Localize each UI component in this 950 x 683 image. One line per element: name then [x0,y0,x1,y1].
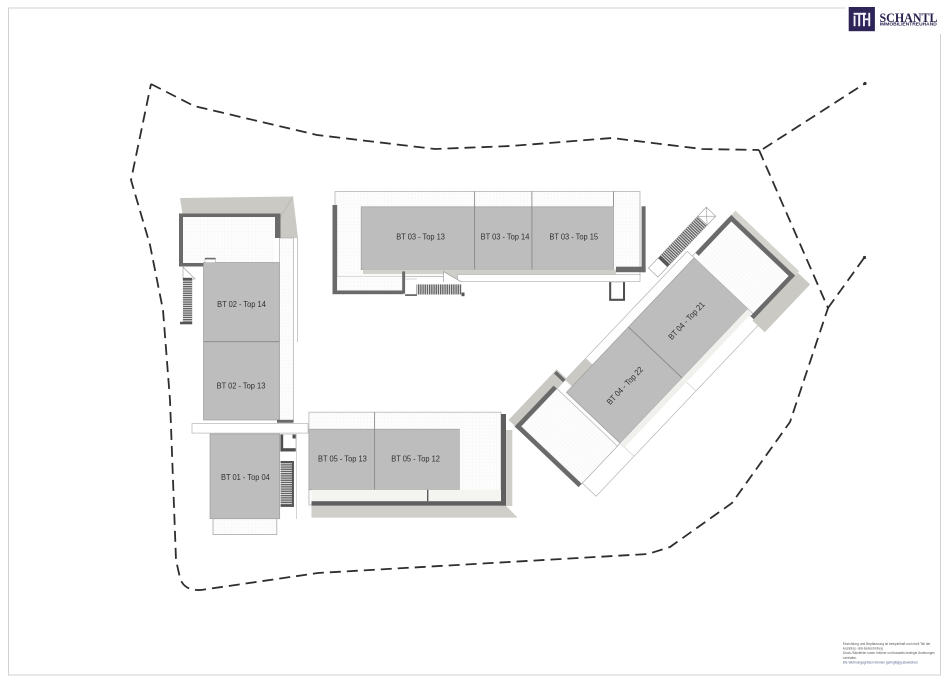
svg-text:BT 03 - Top 14: BT 03 - Top 14 [481,233,530,242]
svg-text:BT 05 - Top 13: BT 05 - Top 13 [318,455,367,464]
svg-text:IMMOBILIENTREUHAND: IMMOBILIENTREUHAND [880,22,937,27]
svg-text:BT 02 - Top 13: BT 02 - Top 13 [217,382,266,391]
svg-text:BT 01 - Top 04: BT 01 - Top 04 [221,473,270,482]
svg-text:BT 05 - Top 12: BT 05 - Top 12 [391,455,440,464]
svg-text:Druck-/Satzfehler sowie Irrtüm: Druck-/Satzfehler sowie Irrtümer und bau… [843,651,935,655]
svg-text:BT 02 - Top 14: BT 02 - Top 14 [217,300,266,309]
svg-text:vorbehalten.: vorbehalten. [843,656,857,660]
svg-text:BT 03 - Top 13: BT 03 - Top 13 [396,233,445,242]
svg-text:Die Wohnungsgrößen können geri: Die Wohnungsgrößen können geringfügig ab… [843,661,918,665]
svg-text:Einrichtung und Bepflanzung is: Einrichtung und Bepflanzung ist beispiel… [843,642,932,646]
svg-text:Ausstattung - siehe Baubeschre: Ausstattung - siehe Baubeschreibung [843,647,883,651]
svg-text:BT 03 - Top 15: BT 03 - Top 15 [549,233,598,242]
